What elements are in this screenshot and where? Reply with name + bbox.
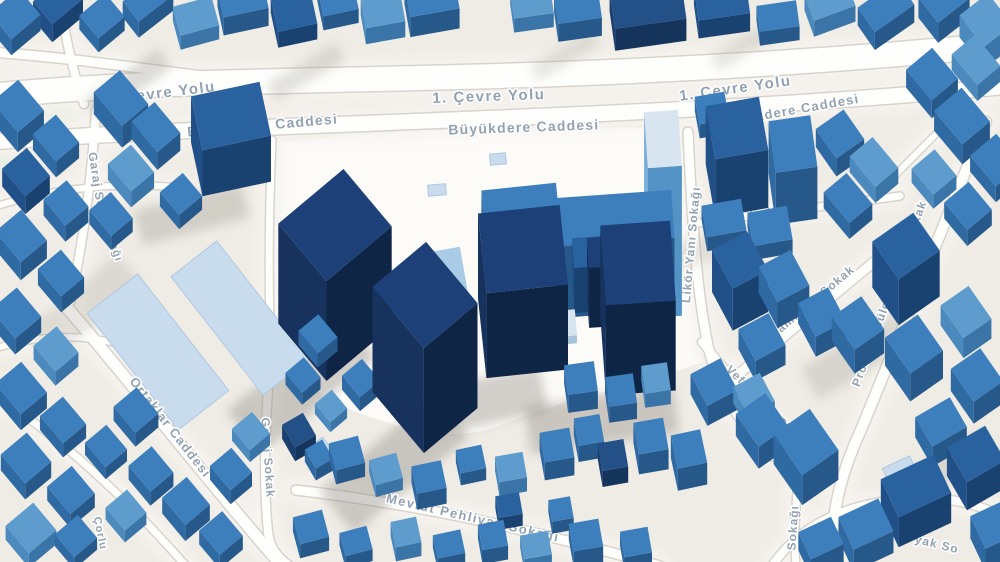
building-roof (478, 205, 568, 293)
building-roof (391, 517, 422, 548)
building-roof (520, 531, 552, 559)
building-roof (569, 519, 603, 552)
building-extrusion[interactable] (756, 0, 799, 45)
building-wall (486, 285, 568, 379)
building-roof (574, 414, 604, 446)
building-extrusion[interactable] (478, 205, 568, 378)
building-extrusion[interactable] (433, 529, 465, 562)
building-extrusion[interactable] (369, 453, 403, 497)
building-roof (605, 373, 637, 407)
building-extrusion[interactable] (329, 436, 365, 485)
building-extrusion[interactable] (391, 517, 422, 562)
map-canvas[interactable]: 1. Çevre Yolu1. Çevre Yolu1. Çevre YoluB… (0, 0, 1000, 562)
building-roof (540, 428, 575, 463)
building-roof (633, 418, 668, 455)
building-extrusion[interactable] (706, 97, 769, 218)
building-extrusion[interactable] (554, 0, 602, 42)
building-extrusion[interactable] (564, 361, 598, 413)
building-extrusion[interactable] (478, 520, 508, 562)
building-roof (598, 439, 628, 471)
building-extrusion[interactable] (191, 82, 271, 196)
building-extrusion[interactable] (605, 373, 637, 423)
building-roof (641, 362, 671, 393)
building-extrusion[interactable] (569, 519, 603, 562)
building-extrusion[interactable] (361, 0, 406, 44)
building-extrusion[interactable] (271, 0, 318, 48)
building-roof (747, 206, 792, 246)
building-extrusion[interactable] (641, 362, 671, 407)
building-roof (548, 496, 573, 521)
building-roof (756, 0, 799, 31)
building-extrusion[interactable] (633, 418, 668, 475)
building-extrusion[interactable] (411, 460, 446, 510)
building-roof (644, 110, 682, 168)
building-roof (495, 492, 522, 518)
building-roof (702, 199, 747, 237)
building-extrusion[interactable] (510, 0, 554, 33)
building-roof (600, 221, 675, 306)
building-extrusion[interactable] (495, 452, 527, 496)
building-extrusion[interactable] (293, 510, 329, 559)
parcel-lot[interactable] (490, 153, 507, 165)
building-extrusion[interactable] (540, 428, 575, 481)
building-roof (564, 361, 598, 395)
building-extrusion[interactable] (520, 531, 552, 562)
building-roof (706, 97, 769, 160)
parcel-lot[interactable] (428, 184, 447, 197)
building-roof (495, 452, 527, 482)
building-extrusion[interactable] (598, 439, 628, 487)
building-extrusion[interactable] (620, 527, 652, 562)
map-viewport[interactable]: 1. Çevre Yolu1. Çevre Yolu1. Çevre YoluB… (0, 0, 1000, 562)
building-extrusion[interactable] (671, 429, 707, 490)
building-extrusion[interactable] (456, 445, 486, 486)
building-roof (769, 115, 818, 172)
building-roof (478, 520, 508, 550)
building-roof (620, 527, 652, 557)
